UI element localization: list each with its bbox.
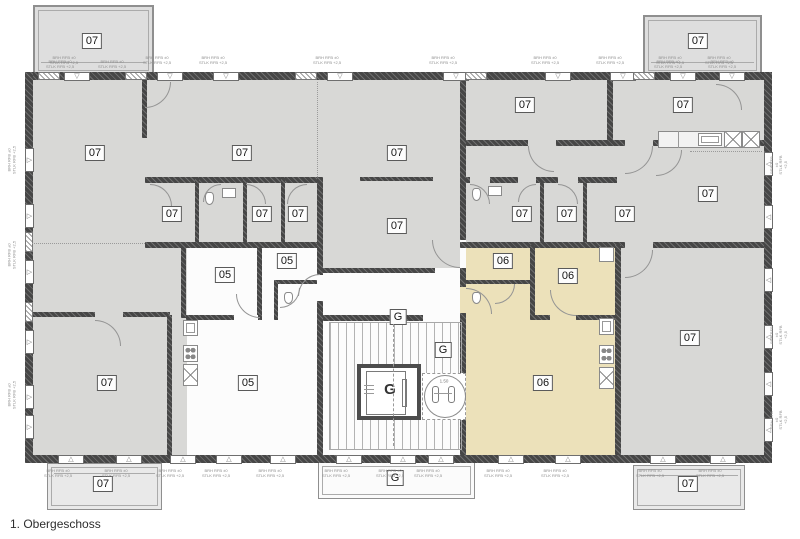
wall-interior bbox=[167, 315, 172, 455]
wall-interior bbox=[145, 242, 322, 248]
dimension-note: BRH RFB ±0 STLK RFB +2,5 bbox=[44, 469, 72, 478]
room-label-G: G bbox=[390, 309, 407, 325]
window: ▽ bbox=[670, 72, 696, 81]
window: △ bbox=[650, 455, 676, 464]
wall-pier bbox=[38, 72, 60, 80]
room-label-07: 07 bbox=[93, 476, 113, 492]
dimension-note: BRH RFB ±0 STLK RFB +2,5 bbox=[102, 469, 130, 478]
dimension-note: BRH RFB ±0 STLK RFB +2,5 bbox=[98, 60, 126, 69]
window: ▷ bbox=[25, 385, 34, 409]
room-label-07: 07 bbox=[162, 206, 182, 222]
room-label-05: 05 bbox=[277, 253, 297, 269]
window: ▽ bbox=[327, 72, 353, 81]
floor-title: 1. Obergeschoss bbox=[10, 517, 101, 531]
room-label-07: 07 bbox=[232, 145, 252, 161]
door-opening bbox=[435, 268, 460, 273]
dimension-note: BRH RFB ±0 STLK RFB +2,5 bbox=[322, 469, 350, 478]
room-label-06: 06 bbox=[558, 268, 578, 284]
dimension-note: BRH RFB ±0 STLK RFB +2,5 bbox=[654, 60, 682, 69]
room-label-07: 07 bbox=[557, 206, 577, 222]
room-label-07: 07 bbox=[698, 186, 718, 202]
window: △ bbox=[170, 455, 196, 464]
room-label-07: 07 bbox=[678, 476, 698, 492]
room-label-07: 07 bbox=[673, 97, 693, 113]
window: △ bbox=[270, 455, 296, 464]
kitchen-cabinet bbox=[599, 367, 614, 389]
dimension-note: BRH RFB ±0 STLK RFB +2,5 bbox=[696, 469, 724, 478]
window: ▽ bbox=[157, 72, 183, 81]
dimension-note: BRH RFB ±0 STLK RFB +2,5 bbox=[531, 56, 559, 65]
room-label-07: 07 bbox=[97, 375, 117, 391]
wall-pier bbox=[25, 302, 33, 322]
window: ▷ bbox=[25, 330, 34, 354]
room-label-07: 07 bbox=[387, 218, 407, 234]
room-label-G: G bbox=[435, 342, 452, 358]
dimension-note: BRH RFB ±0 STLK RFB +2,5 bbox=[414, 469, 442, 478]
room-label-07: 07 bbox=[288, 206, 308, 222]
dimension-note: BRH RFB ±0 STLK RFB +2,5 bbox=[156, 469, 184, 478]
window: △ bbox=[116, 455, 142, 464]
window: △ bbox=[58, 455, 84, 464]
room-label-07: 07 bbox=[512, 206, 532, 222]
room-label-07: 07 bbox=[680, 330, 700, 346]
door-opening bbox=[625, 242, 653, 248]
dimension-note: BRH RFB ±0 STLK RFB +2,5 bbox=[202, 469, 230, 478]
window: ▷ bbox=[25, 148, 34, 172]
window: △ bbox=[498, 455, 524, 464]
dimension-note: BRH RFB ±0 STLK RFB +2,5 bbox=[770, 155, 788, 176]
dimension-note: BRH RFB ±0 STLK RFB +2,5 bbox=[636, 469, 664, 478]
kitchen-sink bbox=[183, 320, 198, 336]
wall-interior bbox=[615, 245, 621, 455]
bath-sink bbox=[488, 186, 502, 196]
room-label-05: 05 bbox=[238, 375, 258, 391]
wall-stair-core bbox=[323, 315, 423, 321]
wheelchair-icon bbox=[434, 393, 452, 394]
wall-pier bbox=[633, 72, 655, 80]
dimension-note: BRH RFB ±0 STLK RFB +2,5 bbox=[708, 60, 736, 69]
kitchen-cabinet bbox=[183, 364, 198, 386]
kitchen-stove bbox=[183, 345, 198, 362]
dimension-note: BRH RFB ±0 STLK RFB +2,5 bbox=[770, 325, 788, 346]
stair-walk-line bbox=[393, 324, 394, 446]
elevator-note bbox=[364, 389, 374, 390]
dimension-note: BRH RFB ±0 STLK RFB +2,5 bbox=[256, 469, 284, 478]
window: △ bbox=[428, 455, 454, 464]
window: △ bbox=[710, 455, 736, 464]
kitchen-cabinet bbox=[599, 247, 614, 262]
dimension-note: BRH RFB ±0 STLK RFB +2,5 bbox=[8, 146, 17, 174]
wall-interior bbox=[583, 183, 587, 248]
door-opening bbox=[558, 177, 578, 183]
wall-interior bbox=[274, 280, 278, 320]
elevator-note bbox=[364, 393, 374, 394]
dimension-note: BRH RFB ±0 STLK RFB +2,5 bbox=[199, 56, 227, 65]
window: ◁ bbox=[764, 372, 773, 396]
wall-interior bbox=[607, 80, 613, 140]
room-label-07: 07 bbox=[85, 145, 105, 161]
reference-line bbox=[317, 82, 318, 177]
dimension-note: BRH RFB ±0 STLK RFB +2,5 bbox=[596, 56, 624, 65]
window: ▽ bbox=[213, 72, 239, 81]
window: ▷ bbox=[25, 260, 34, 284]
window: ▽ bbox=[545, 72, 571, 81]
wheelchair-icon bbox=[448, 386, 455, 403]
wall-pier bbox=[125, 72, 147, 80]
wall-pier bbox=[465, 72, 487, 80]
room-label-G: G bbox=[381, 383, 399, 397]
floor-plan-canvas: 1.50 1. Obergeschoss 0707070707070707070… bbox=[0, 0, 800, 539]
room-label-05: 05 bbox=[215, 267, 235, 283]
wall-interior bbox=[181, 248, 186, 318]
door-opening bbox=[518, 177, 536, 183]
unit-06-area bbox=[466, 245, 615, 455]
kitchen-sink bbox=[599, 318, 614, 335]
window: ▽ bbox=[719, 72, 745, 81]
dimension-note: BRH RFB ±0 STLK RFB +2,5 bbox=[541, 469, 569, 478]
counter-divider bbox=[678, 131, 679, 148]
window: △ bbox=[216, 455, 242, 464]
window: ◁ bbox=[764, 268, 773, 292]
room-label-07: 07 bbox=[515, 97, 535, 113]
room-label-07: 07 bbox=[615, 206, 635, 222]
wall-interior bbox=[281, 177, 285, 248]
turning-radius-label: 1.50 bbox=[440, 379, 449, 384]
door-opening bbox=[470, 177, 490, 183]
door-opening bbox=[95, 312, 123, 317]
dimension-note: BRH RFB ±0 STLK RFB +2,5 bbox=[429, 56, 457, 65]
bath-sink bbox=[222, 188, 236, 198]
wall-pier bbox=[295, 72, 317, 80]
dimension-note: BRH RFB ±0 STLK RFB +2,5 bbox=[770, 410, 788, 431]
elevator-door bbox=[402, 379, 407, 407]
wheelchair-icon bbox=[432, 386, 439, 403]
window: ▷ bbox=[25, 204, 34, 228]
kitchen-cabinet bbox=[742, 131, 760, 148]
dimension-note: BRH RFB ±0 STLK RFB +2,5 bbox=[46, 60, 74, 69]
wall-interior bbox=[195, 177, 199, 248]
dimension-note: BRH RFB ±0 STLK RFB +2,5 bbox=[8, 241, 17, 269]
dimension-note: BRH RFB ±0 STLK RFB +2,5 bbox=[376, 469, 404, 478]
room-label-07: 07 bbox=[252, 206, 272, 222]
reference-line bbox=[32, 243, 145, 244]
wall-interior bbox=[540, 183, 544, 248]
elevator-note bbox=[364, 385, 374, 386]
floor-plan: 1.50 1. Obergeschoss 0707070707070707070… bbox=[0, 0, 800, 539]
window: △ bbox=[336, 455, 362, 464]
window: ▷ bbox=[25, 415, 34, 439]
window: △ bbox=[390, 455, 416, 464]
dimension-note: BRH RFB ±0 STLK RFB +2,5 bbox=[484, 469, 512, 478]
wall-partition bbox=[360, 177, 433, 181]
wall-interior bbox=[530, 245, 535, 320]
wall-interior bbox=[145, 177, 322, 183]
wall-pier bbox=[25, 232, 33, 252]
dimension-note: BRH RFB ±0 STLK RFB +2,5 bbox=[8, 381, 17, 409]
kitchen-stove bbox=[599, 345, 614, 364]
dimension-note: BRH RFB ±0 STLK RFB +2,5 bbox=[313, 56, 341, 65]
window: △ bbox=[555, 455, 581, 464]
window: ◁ bbox=[764, 205, 773, 229]
kitchen-sink bbox=[698, 133, 722, 146]
window: ▽ bbox=[64, 72, 90, 81]
room-label-07: 07 bbox=[82, 33, 102, 49]
room-label-06: 06 bbox=[493, 253, 513, 269]
kitchen-cabinet bbox=[724, 131, 742, 148]
reference-line bbox=[690, 151, 762, 152]
room-label-07: 07 bbox=[387, 145, 407, 161]
dimension-note: BRH RFB ±0 STLK RFB +2,5 bbox=[143, 56, 171, 65]
room-label-07: 07 bbox=[688, 33, 708, 49]
room-label-06: 06 bbox=[533, 375, 553, 391]
